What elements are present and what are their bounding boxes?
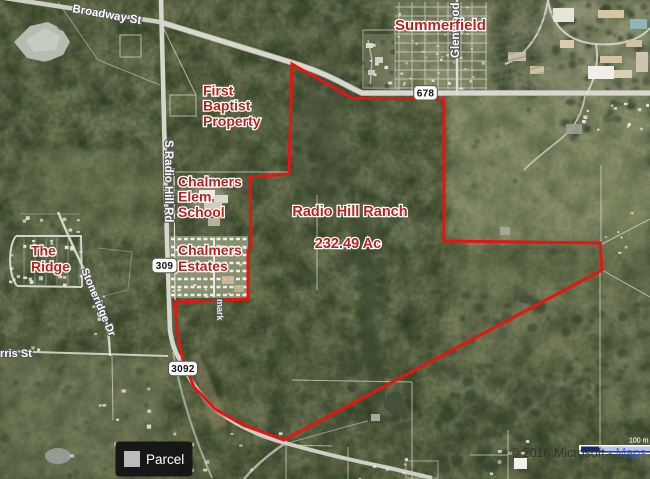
svg-text:Radio Hill Ranch: Radio Hill Ranch (292, 204, 407, 220)
svg-text:Parcel: Parcel (146, 452, 184, 467)
svg-text:mark: mark (215, 299, 225, 322)
svg-text:S Radio Hill Rd: S Radio Hill Rd (162, 140, 174, 222)
svg-text:309: 309 (156, 261, 174, 272)
svg-text:© 2016 Microsoft - Maps Liv: © 2016 Microsoft - Maps Liv (510, 446, 650, 460)
svg-text:100 m: 100 m (629, 438, 649, 445)
svg-text:678: 678 (417, 89, 435, 100)
svg-text:232.49 Ac: 232.49 Ac (315, 236, 381, 252)
svg-text:Harris St: Harris St (0, 348, 32, 360)
svg-text:3092: 3092 (171, 364, 195, 375)
svg-text:Summerfield: Summerfield (395, 17, 486, 34)
